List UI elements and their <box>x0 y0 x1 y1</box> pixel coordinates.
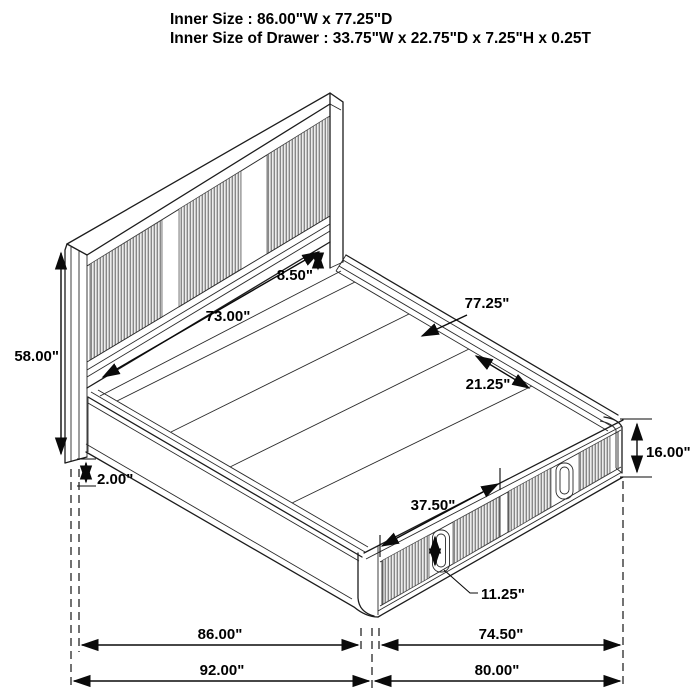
dim-inner-width-label: 86.00" <box>198 626 243 643</box>
dim-headboard-height-label: 58.00" <box>14 348 59 365</box>
slat-line-2 <box>171 314 409 432</box>
dim-drawer-width-label: 37.50" <box>411 497 456 514</box>
inner-size-line: Inner Size : 86.00"W x 77.25"D <box>170 11 392 28</box>
dim-handle-height-label: 11.25" <box>481 586 525 603</box>
platform <box>86 255 622 617</box>
right-side-rail <box>336 255 618 431</box>
dim-overall-width-label: 92.00" <box>200 662 245 679</box>
drawer-handle-2 <box>556 463 573 499</box>
dim-footboard-height-label: 16.00" <box>646 444 691 461</box>
dim-inner-depth-label: 77.25" <box>465 295 510 312</box>
bed-dimension-diagram: 58.00" 2.00" 73.00" 8.50" 77.25" 21.25" … <box>0 0 700 700</box>
left-side-rail <box>86 390 378 617</box>
dim-overall-length-label: 80.00" <box>475 662 520 679</box>
dim-headboard-gap-label: 8.50" <box>277 267 313 284</box>
drawer-1-front-left <box>383 535 429 604</box>
drawer-size-line: Inner Size of Drawer : 33.75"W x 22.75"D… <box>170 30 591 47</box>
dim-drawer-side-label: 74.50" <box>479 626 524 643</box>
headboard-left-post <box>65 244 67 463</box>
drawer-1-front-right <box>453 497 499 564</box>
dim-slat-depth-label: 21.25" <box>466 376 511 393</box>
diagram-canvas: 58.00" 2.00" 73.00" 8.50" 77.25" 21.25" … <box>0 0 700 700</box>
size-header: Inner Size : 86.00"W x 77.25"D Inner Siz… <box>170 11 591 47</box>
slat-line-3 <box>230 349 469 467</box>
dim-base-clearance-label: 2.00" <box>97 471 133 488</box>
dim-headboard-width-label: 73.00" <box>206 308 251 325</box>
